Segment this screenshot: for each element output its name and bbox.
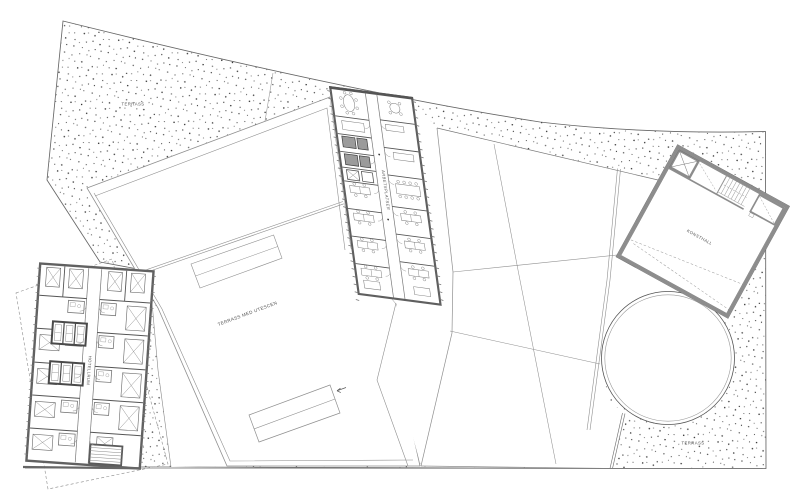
svg-text:TERRASS: TERRASS: [681, 441, 704, 446]
svg-text:TERRASS: TERRASS: [121, 102, 144, 107]
